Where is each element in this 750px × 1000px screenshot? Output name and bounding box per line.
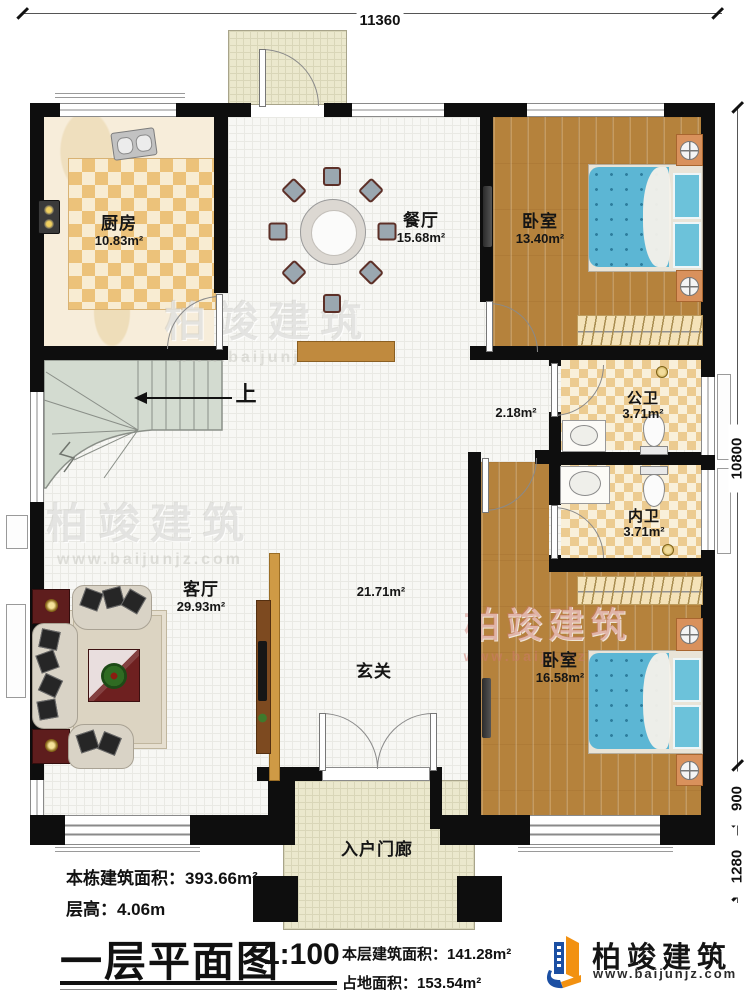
wall [660,815,715,845]
lamp-icon [45,739,58,752]
door-leaf [259,49,266,107]
window [701,470,715,550]
dimension-right-middle: 900 [729,772,746,826]
nightstand [676,270,703,302]
coffee-table [88,649,140,702]
lamp-icon [680,625,699,644]
dimension-right-upper: 10800 [729,425,746,493]
window-sill [6,604,26,698]
wall [324,103,352,117]
bathroom-sink [562,420,606,452]
wall [701,103,715,377]
dining-chair [323,167,341,186]
sideboard [297,341,395,362]
window [60,103,176,117]
toilet-bowl [643,474,665,507]
entry-door-frame [322,767,430,781]
window [352,103,444,117]
title-underline-thin [60,989,337,990]
lamp-icon [680,277,699,296]
wall [214,117,228,293]
window-sill [518,847,673,855]
room-label-living: 客厅29.93m² [177,580,225,614]
wall [444,103,527,117]
wall [701,550,715,815]
duvet [643,167,671,267]
duvet [643,653,671,749]
hallway-area-label: 2.18m² [495,406,536,421]
dining-table [300,199,366,265]
lamp-icon [680,141,699,160]
sink-basin [135,134,153,153]
room-label-bedroom-bottom: 卧室16.58m² [536,651,584,685]
window [30,392,44,502]
window [701,377,715,455]
nightstand [676,754,703,786]
wall [440,815,530,845]
sink-basin [570,425,598,446]
room-label-kitchen: 厨房10.83m² [95,214,143,248]
building-total-area-text: 本栋建筑面积：393.66m² [66,864,258,889]
door-leaf [486,301,493,352]
sofa-pillow [38,628,61,651]
nightstand [676,134,703,166]
nightstand [676,618,703,651]
plan-scale: 1:100 [263,938,340,972]
stairs-direction-line [140,397,232,399]
window-sill [6,515,28,549]
wall [561,452,701,465]
tv-panel [482,678,491,738]
dining-chair [378,223,397,241]
floor-height-text: 层高：4.06m [66,895,165,920]
window [530,815,660,845]
door-leaf [551,505,558,559]
window-sill [55,93,185,101]
porch-pillar [253,876,298,922]
room-label-entry-porch: 入户门廊 [341,840,413,860]
door-leaf [319,713,326,771]
dimension-top: 11360 [357,12,404,29]
window-sill [55,847,200,855]
toilet-tank [640,446,668,455]
lamp-icon [680,761,699,780]
bed [588,164,703,272]
door-leaf [482,458,489,513]
door-leaf [430,713,437,771]
dining-table-top [311,210,357,256]
sofa-pillow [36,698,58,720]
sink-basin [569,471,601,496]
wall [701,455,715,470]
plan-title: 一层平面图 [60,928,280,989]
land-area-text: 占地面积：153.54m² [342,972,481,993]
title-underline [60,981,337,985]
window [527,103,664,117]
burner [44,219,54,229]
stairs-arrow-icon [128,392,147,404]
pillow [673,658,701,702]
kitchen-stove [38,200,60,234]
side-table [32,589,70,624]
sink-basin [116,136,134,155]
floor-plan: 上 柏竣建筑www.baijunjz.com 柏竣建筑www.baijunjz.… [0,0,750,1000]
tv-screen [258,641,267,701]
stairs-up-label: 上 [236,383,257,407]
wardrobe [577,576,703,605]
door-leaf [551,363,558,417]
potted-plant-icon [101,663,127,689]
pillow [673,705,701,749]
tv-panel [483,186,492,247]
lamp-icon [45,599,58,612]
wardrobe [577,315,703,346]
brand-website: www.baijunjz.com [593,966,737,981]
floor-area-text: 本层建筑面积：141.28m² [342,943,511,964]
toilet [640,466,668,510]
wall [549,558,701,572]
staircase [30,356,230,490]
bed [588,650,703,754]
foyer-area-label: 21.71m² [357,585,405,600]
window [65,815,190,845]
pillow [673,173,701,219]
dimension-right-lower: 1280 [729,836,746,898]
wall [30,815,65,845]
brand-logo-icon [541,930,589,990]
dining-chair [323,294,341,313]
room-label-public-bath: 公卫3.71m² [622,390,663,422]
porch-pillar [457,876,502,922]
wall [468,452,481,815]
room-label-dining: 餐厅15.68m² [397,211,445,245]
wall [176,103,251,117]
dining-chair [269,223,288,241]
plant-decor-icon [258,712,267,724]
burner [44,205,54,215]
side-table [32,729,70,764]
room-label-foyer: 玄关 [356,662,392,682]
bathroom-sink [560,466,610,504]
room-label-inner-bath: 内卫3.71m² [623,508,664,540]
wall [430,767,442,829]
door-leaf [216,294,223,350]
shower-head-icon [662,544,674,556]
room-label-bedroom-top: 卧室13.40m² [516,212,564,246]
shower-head-icon [656,366,668,378]
pillow [673,222,701,268]
